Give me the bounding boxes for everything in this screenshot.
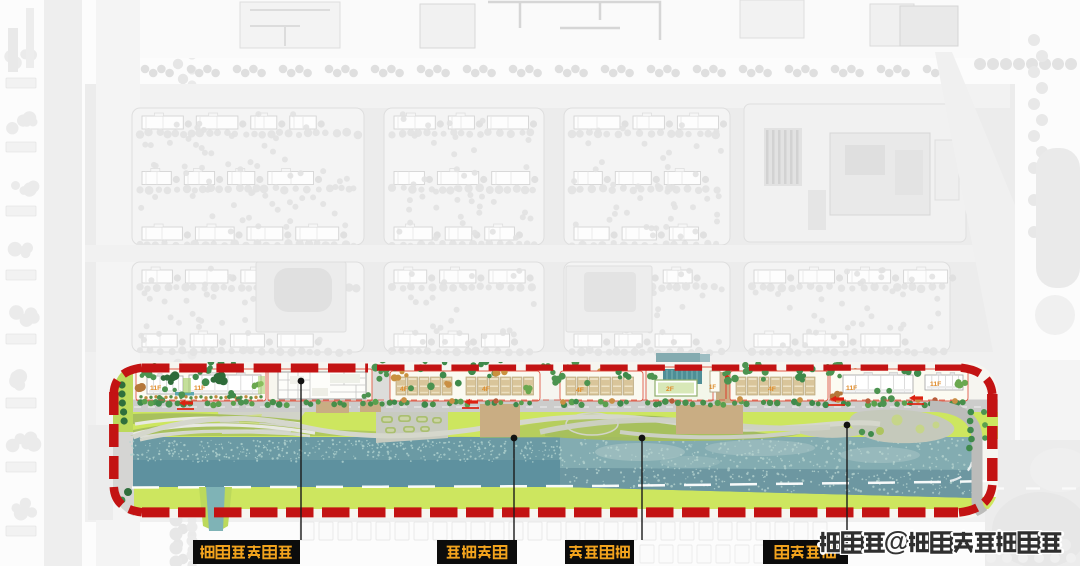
svg-text:4F: 4F [400, 386, 408, 393]
svg-text:11F: 11F [194, 385, 205, 392]
svg-text:11F: 11F [846, 385, 857, 392]
svg-text:1F: 1F [709, 385, 716, 391]
svg-text:4F: 4F [576, 387, 584, 394]
svg-text:11F: 11F [150, 385, 161, 392]
svg-text:2F: 2F [666, 386, 674, 393]
svg-text:4F: 4F [482, 386, 490, 393]
svg-text:@: @ [884, 526, 910, 556]
svg-text:11F: 11F [930, 381, 941, 388]
svg-text:4F: 4F [768, 386, 776, 393]
